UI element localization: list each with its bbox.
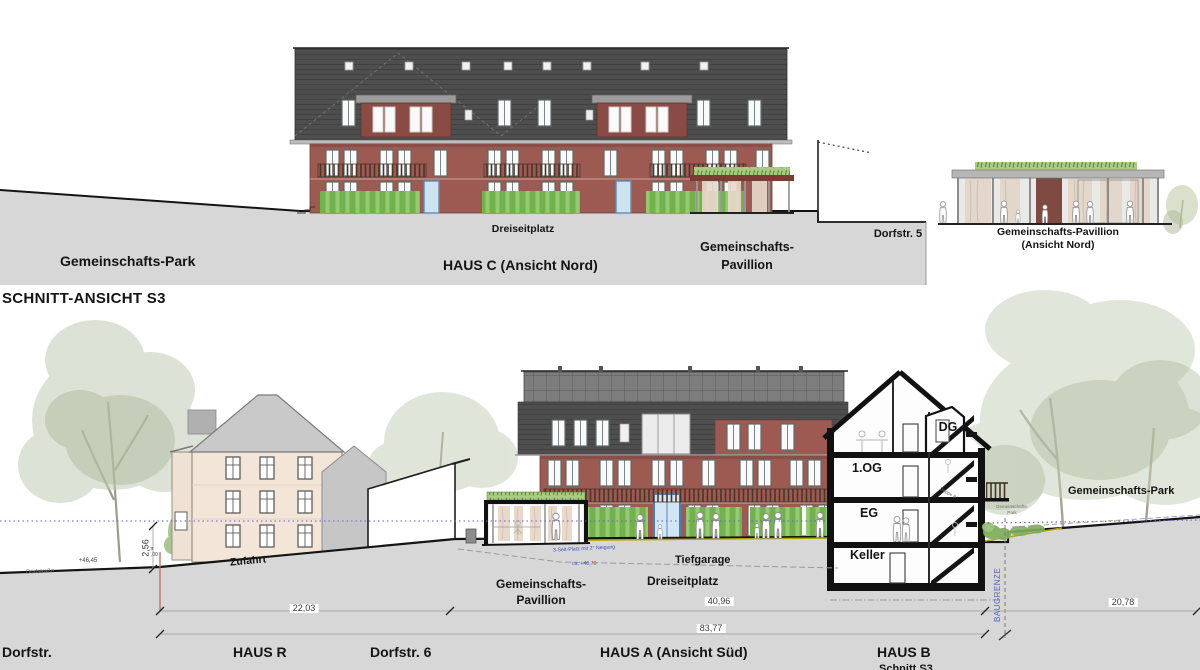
floor-eg-label: EG <box>860 507 878 520</box>
elevation-drawing <box>0 0 1200 670</box>
dorfstr5-label: Dorfstr. 5 <box>874 229 922 241</box>
pavillion-nord-label-line2: (Ansicht Nord) <box>1022 240 1095 251</box>
dorfstr6-label: Dorfstr. 6 <box>370 645 431 660</box>
floor-og-label: 1.OG <box>852 462 882 475</box>
park-label-section: Gemeinschafts-Park <box>1068 486 1174 498</box>
haus-a-label: HAUS A (Ansicht Süd) <box>600 645 748 660</box>
architectural-sheet: Gemeinschafts-Park Dreiseitplatz HAUS C … <box>0 0 1200 670</box>
level-note-red: 70 <box>591 561 597 567</box>
pavilion-section <box>466 492 590 545</box>
haus-r-building <box>170 395 344 562</box>
park-label-top: Gemeinschafts-Park <box>60 254 195 269</box>
pavillion-nord-label-line1: Gemeinschafts-Pavillion <box>997 227 1119 238</box>
haus-c-building <box>290 48 794 213</box>
dreiseitplatz-label-top: Dreiseitplatz <box>492 224 554 235</box>
pavillion-label-line2: Pavillion <box>721 259 772 272</box>
haus-r-label: HAUS R <box>233 645 287 660</box>
dormer <box>356 95 456 137</box>
trash-bin <box>466 529 476 543</box>
dim-platz: 40,96 <box>705 597 734 606</box>
floor-keller-label: Keller <box>850 549 885 562</box>
haus-c-label: HAUS C (Ansicht Nord) <box>443 258 598 273</box>
dormer <box>592 95 692 137</box>
dreiseitplatz-label-section: Dreiseitplatz <box>647 575 718 588</box>
pavillion-section-label-line1: Gemeinschafts- <box>496 578 586 591</box>
pavillion-label-line1: Gemeinschafts- <box>700 241 794 254</box>
level-note: ca. +46,70 <box>572 562 596 567</box>
pavillion-section-label-line2: Pavillion <box>516 594 565 607</box>
dim-zufahrt: 22,03 <box>290 604 319 613</box>
level-note-blue: ca. +46, <box>572 561 591 567</box>
haus-b-sublabel: Schnitt S3 <box>879 664 933 670</box>
street-label: Dorfstr. <box>2 645 52 660</box>
section-title: SCHNITT-ANSICHT S3 <box>2 291 166 307</box>
tree-small-top <box>1163 185 1198 234</box>
dim-street-height: 2,56 <box>141 536 150 560</box>
boundary-wall <box>818 140 872 222</box>
floor-dg-label: DG <box>939 421 958 434</box>
park-small-line2: Park <box>1007 511 1016 516</box>
dim-total: 83,77 <box>697 624 726 633</box>
baugrenze-label: BAUGRENZE <box>994 568 1002 622</box>
pavilion-nord <box>938 162 1172 224</box>
tiefgarage-label: Tiefgarage <box>675 555 730 567</box>
dim-park: 20,78 <box>1109 598 1138 607</box>
haus-b-label: HAUS B <box>877 645 931 660</box>
level-4645-label: +46,45 <box>79 558 98 564</box>
